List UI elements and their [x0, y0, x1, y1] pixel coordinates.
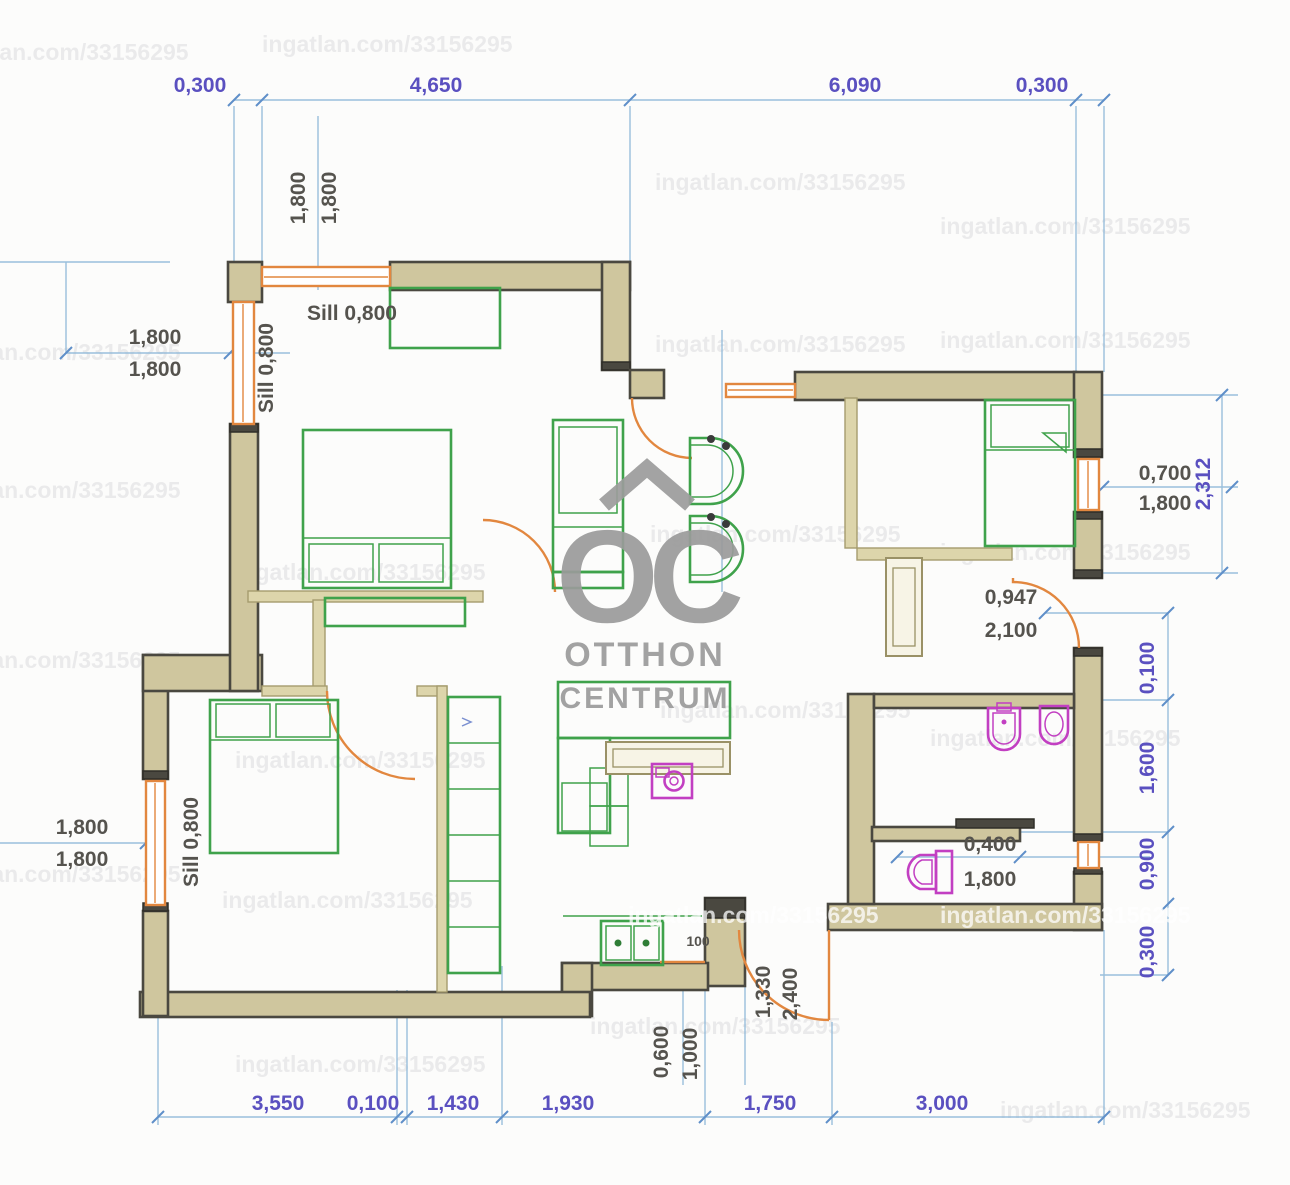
living-top-wall [795, 372, 1076, 400]
bedroom1-door-arc [483, 520, 555, 592]
bedroom3-bottom-partition [857, 548, 1012, 560]
logo-line2: CENTRUM [560, 682, 731, 715]
bedroom1-hall-door-arc [632, 398, 692, 458]
sill-label-low: Sill 0,800 [180, 797, 203, 887]
dim-top-0300-left: 0,300 [174, 74, 227, 97]
dim-wc-1800: 1,800 [964, 868, 1017, 891]
dim-entry-1000: 1,000 [679, 1028, 702, 1081]
watermark-text: ingatlan.com/33156295 [235, 559, 486, 585]
logo-line1: OTTHON [564, 636, 726, 674]
dim-entry-0600: 0,600 [650, 1026, 673, 1079]
right-wall-top [1074, 372, 1102, 457]
corner-post [228, 262, 262, 302]
bedroom2-bed [210, 700, 338, 853]
top-wall-bedroom1 [390, 262, 630, 290]
dim-top-0300-right: 0,300 [1016, 74, 1069, 97]
watermark-text: ingatlan.com/33156295 [940, 213, 1191, 239]
hall-shelving-column [448, 697, 500, 973]
dim-right-window-1800: 1,800 [1139, 492, 1192, 515]
dim-leftmid-1800a: 1,800 [129, 326, 182, 349]
bedroom1-bottom-partition [248, 591, 483, 602]
bedroom2-left-wall-bottom [143, 911, 168, 1016]
corridor-cabinet [886, 558, 922, 656]
dim-top-4650: 4,650 [410, 74, 463, 97]
hall-bedroom2-partition [437, 686, 447, 992]
dim-entry-1330: 1,330 [752, 966, 775, 1019]
dim-bottom-1430: 1,430 [427, 1092, 480, 1115]
right-wall-mid [1074, 512, 1102, 578]
floor-plan-page: ingatlan.com/33156295 ingatlan.com/33156… [0, 0, 1290, 1185]
brand-logo: OC OTTHON CENTRUM [556, 468, 741, 715]
bedroom1-right-wall [602, 262, 630, 370]
dim-chain-0100: 0,100 [1136, 642, 1159, 695]
dim-right-span-2312: 2,312 [1192, 458, 1215, 511]
watermark-text: ingatlan.com/33156295 [940, 327, 1191, 353]
dim-bottom-1930: 1,930 [542, 1092, 595, 1115]
dim-bottom-0100: 0,100 [347, 1092, 400, 1115]
watermark-text: ingatlan.com/33156295 [0, 39, 189, 65]
logo-initials: OC [556, 503, 741, 650]
living-bath-wall [848, 694, 874, 904]
dim-lefttop-1800b: 1,800 [318, 172, 341, 225]
watermark-text: ingatlan.com/33156295 [235, 1051, 486, 1077]
dim-lefttop-1800a: 1,800 [287, 172, 310, 225]
living-bedroom3-partition [845, 398, 857, 548]
dim-right-door-2100: 2,100 [985, 619, 1038, 642]
dim-leftlow-1800b: 1,800 [56, 848, 109, 871]
dim-bottom-3000: 3,000 [916, 1092, 969, 1115]
dim-right-window-0700: 0,700 [1139, 462, 1192, 485]
dim-chain-0300: 0,300 [1136, 926, 1159, 979]
kitchen-shelf [606, 742, 730, 774]
watermark-text: ingatlan.com/33156295 [0, 477, 181, 503]
bedroom2-top-partition [262, 686, 327, 696]
sill-label-top-vertical: Sill 0,800 [255, 323, 278, 413]
dim-chain-1600: 1,600 [1136, 742, 1159, 795]
sill-label-top: Sill 0,800 [307, 302, 397, 325]
watermark-text: ingatlan.com/33156295 [1000, 1097, 1251, 1123]
watermark-text: ingatlan.com/33156295 [655, 169, 906, 195]
watermark-text: ingatlan.com/33156295 [940, 902, 1191, 928]
right-wall-low [1074, 648, 1102, 840]
bedroom1-wardrobe [390, 288, 500, 348]
watermark-text: ingatlan.com/33156295 [262, 31, 513, 57]
entry-post-label: 100 [686, 933, 710, 949]
watermark-text: ingatlan.com/33156295 [655, 331, 906, 357]
dim-bottom-1750: 1,750 [744, 1092, 797, 1115]
hall-stub-wall [630, 370, 664, 398]
dim-top-6090: 6,090 [829, 74, 882, 97]
corridor-partition [313, 600, 325, 691]
dim-wc-0400: 0,400 [964, 833, 1017, 856]
watermark-text: ingatlan.com/33156295 [222, 887, 473, 913]
dim-entry-2400: 2,400 [779, 968, 802, 1021]
bedroom1-left-wall [230, 424, 258, 691]
dining-chair [690, 435, 743, 504]
floor-plan: ingatlan.com/33156295 ingatlan.com/33156… [0, 0, 1290, 1185]
dim-chain-0900: 0,900 [1136, 838, 1159, 891]
dim-bottom-3550: 3,550 [252, 1092, 305, 1115]
wc-lintel [956, 819, 1034, 828]
dim-leftmid-1800b: 1,800 [129, 358, 182, 381]
dim-leftlow-1800a: 1,800 [56, 816, 109, 839]
watermark-text: ingatlan.com/33156295 [628, 902, 879, 928]
dim-right-door-0947: 0,947 [985, 586, 1038, 609]
bedroom2-bottom-wall [140, 992, 590, 1017]
bedroom3-bed [985, 400, 1075, 546]
